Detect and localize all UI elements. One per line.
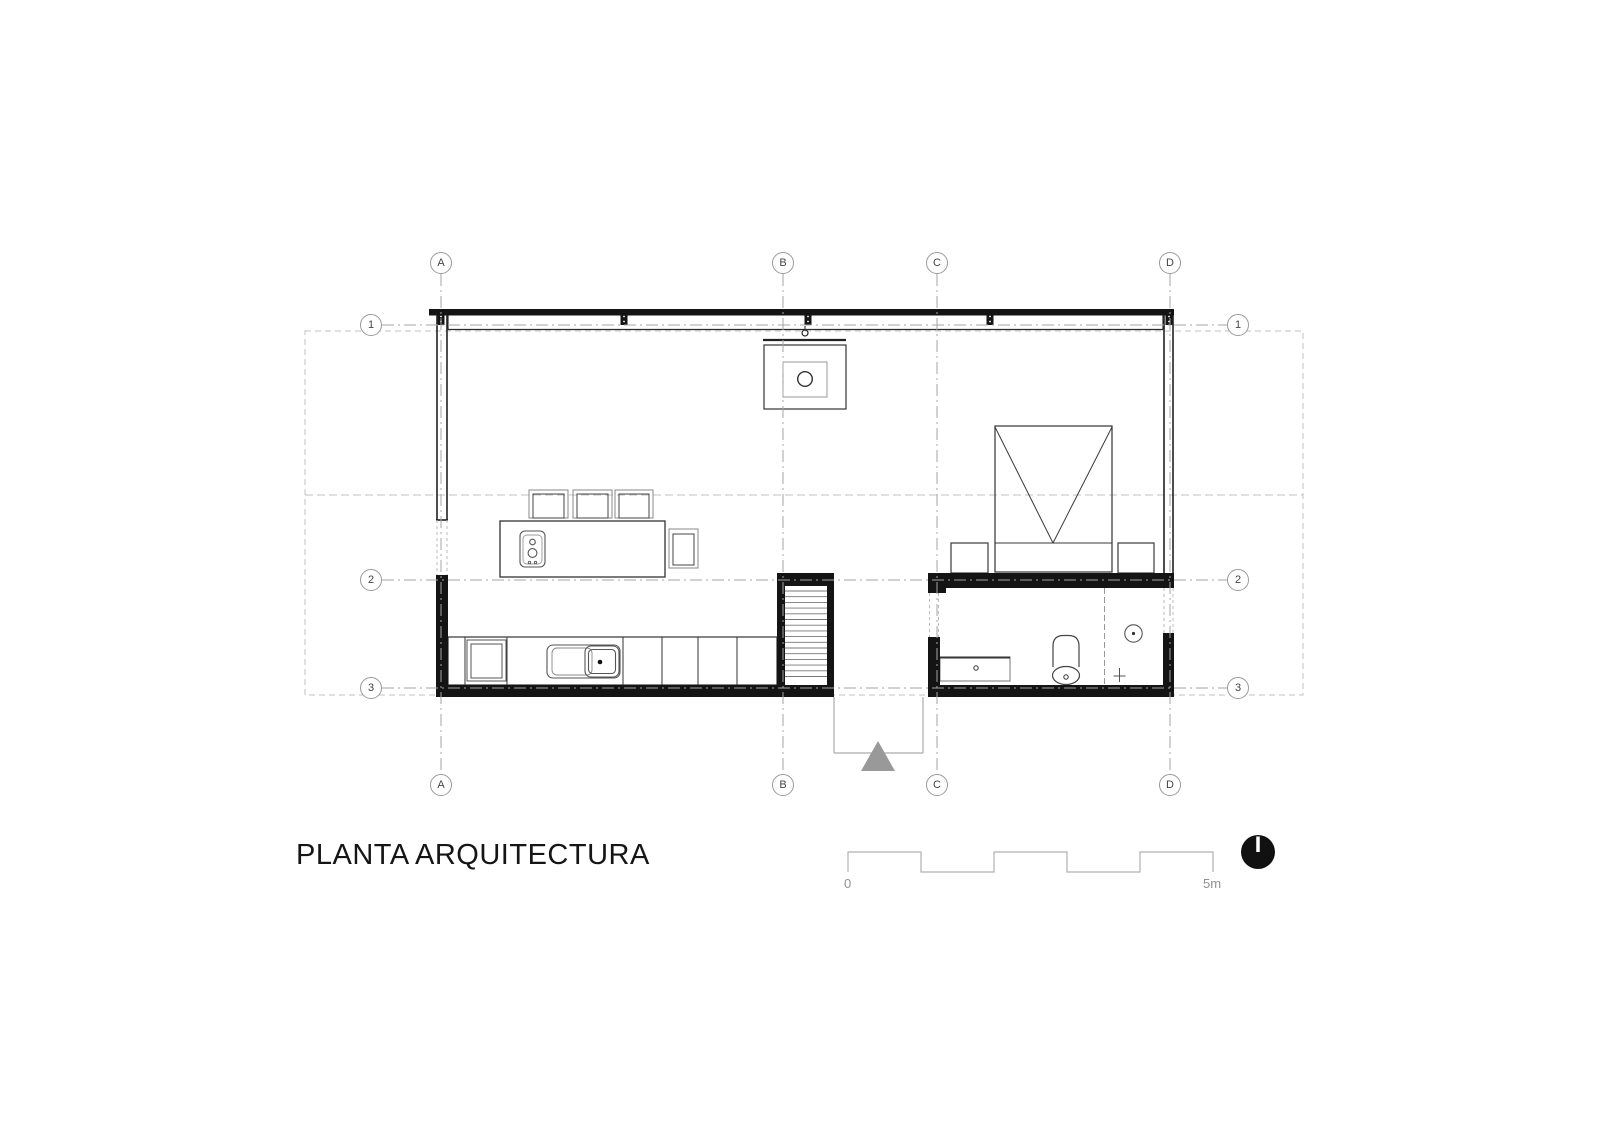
entry-arrow-icon	[861, 741, 895, 771]
appliance	[467, 640, 506, 681]
right-window	[1164, 588, 1173, 633]
top-wall	[429, 309, 1174, 316]
right-wall-lower	[1163, 633, 1174, 697]
bed	[951, 426, 1154, 573]
drawing-title: PLANTA ARQUITECTURA	[296, 839, 650, 872]
scale-bar	[848, 852, 1213, 872]
furniture-layer	[448, 326, 1154, 685]
grid-bubble-3-right: 3	[1227, 677, 1249, 699]
grid-bubble-D-bottom: D	[1159, 774, 1181, 796]
scale-start-label: 0	[844, 876, 851, 891]
sink-drain	[598, 660, 603, 665]
floor-plan-drawing	[0, 0, 1600, 1131]
left-wall-lower	[436, 575, 448, 697]
bathroom-fixtures	[940, 588, 1142, 685]
right-wall	[1164, 315, 1173, 573]
grid-bubble-C-bottom: C	[926, 774, 948, 796]
island-chairs	[529, 490, 698, 568]
grid-bubble-B-top: B	[772, 252, 794, 274]
grid-bubble-1-left: 1	[360, 314, 382, 336]
kitchen-sink	[547, 645, 620, 678]
kitchen-island	[500, 521, 665, 577]
cooktop	[520, 531, 545, 567]
grid-bubble-C-top: C	[926, 252, 948, 274]
grid-bubble-D-top: D	[1159, 252, 1181, 274]
grid-bubble-B-bottom: B	[772, 774, 794, 796]
toilet	[1053, 636, 1079, 668]
vanity	[940, 657, 1010, 681]
nightstand-right	[1118, 543, 1154, 573]
stair-treads	[785, 591, 827, 677]
north-indicator-icon	[1241, 835, 1275, 869]
nightstand-left	[951, 543, 988, 573]
left-window	[437, 520, 447, 575]
fireplace	[763, 326, 846, 409]
floor-plan-sheet: A B C D A B C D 1 2 3 1 2 3 PLANTA ARQUI…	[0, 0, 1600, 1131]
bottom-wall-kitchen	[436, 685, 834, 697]
scale-end-label: 5m	[1203, 876, 1221, 891]
grid-bubble-2-right: 2	[1227, 569, 1249, 591]
grid-bubble-1-right: 1	[1227, 314, 1249, 336]
grid-bubble-2-left: 2	[360, 569, 382, 591]
stair-walls	[777, 573, 834, 697]
grid-lines	[382, 274, 1227, 775]
grid-bubble-A-bottom: A	[430, 774, 452, 796]
left-wall	[436, 315, 448, 520]
grid-bubble-3-left: 3	[360, 677, 382, 699]
bottom-wall-bathroom	[928, 685, 1174, 697]
grid-bubble-A-top: A	[430, 252, 452, 274]
